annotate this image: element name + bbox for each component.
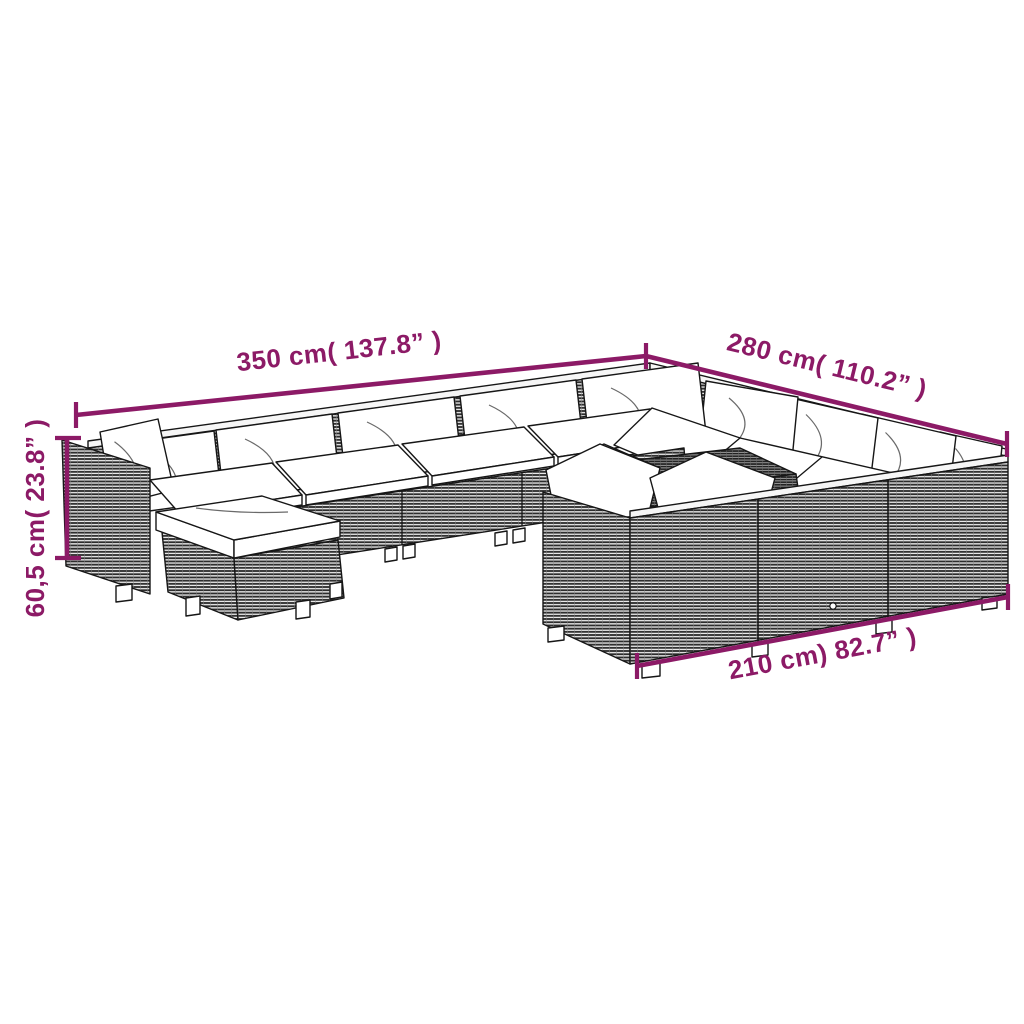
dimension-label-back-width: 350 cm( 137.8” ) bbox=[235, 325, 443, 377]
sofa-foot bbox=[385, 547, 397, 562]
sofa-foot bbox=[513, 528, 525, 543]
sofa-foot bbox=[495, 531, 507, 546]
left-armrest bbox=[62, 440, 150, 594]
sofa-foot bbox=[548, 626, 564, 642]
sofa-illustration: 350 cm( 137.8” ) 280 cm( 110.2” ) 60,5 c… bbox=[0, 0, 1024, 1024]
sofa-foot bbox=[403, 544, 415, 559]
sofa-foot bbox=[186, 596, 200, 616]
sofa-foot bbox=[296, 600, 310, 619]
sofa-foot bbox=[330, 582, 342, 599]
dimension-label-height: 60,5 cm( 23.8” ) bbox=[20, 419, 50, 618]
product-diagram: 350 cm( 137.8” ) 280 cm( 110.2” ) 60,5 c… bbox=[0, 0, 1024, 1024]
sofa-foot bbox=[116, 584, 132, 602]
weave-hole bbox=[830, 603, 836, 609]
